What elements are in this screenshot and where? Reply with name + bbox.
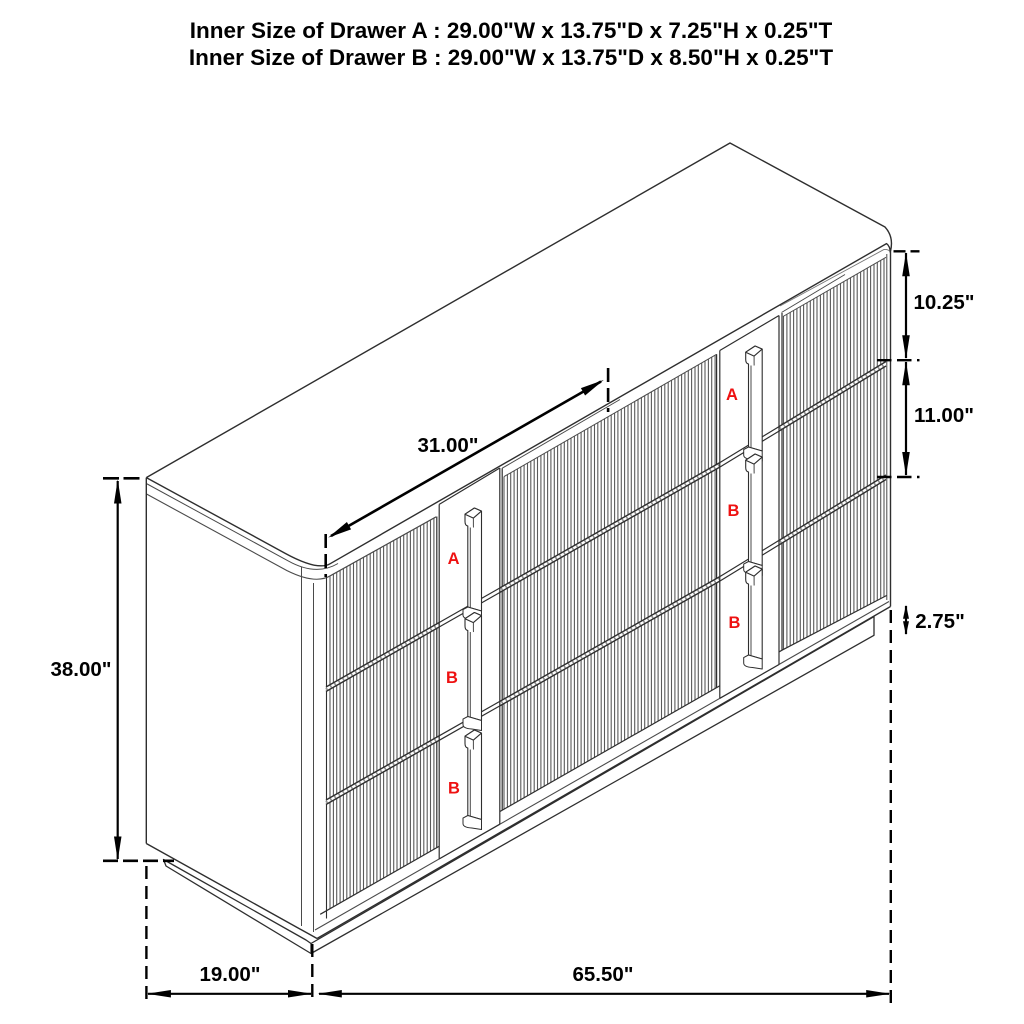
svg-text:Inner Size of Drawer A : 29.00: Inner Size of Drawer A : 29.00"W x 13.75… (190, 18, 833, 43)
svg-text:11.00": 11.00" (914, 404, 974, 427)
svg-text:38.00": 38.00" (50, 658, 111, 681)
svg-text:B: B (446, 669, 458, 687)
svg-text:2.75": 2.75" (915, 610, 965, 633)
svg-text:31.00": 31.00" (417, 434, 478, 457)
svg-text:A: A (726, 386, 738, 404)
svg-text:B: B (448, 780, 460, 798)
svg-text:19.00": 19.00" (199, 963, 260, 986)
svg-text:10.25": 10.25" (913, 291, 974, 314)
svg-text:B: B (729, 614, 741, 632)
svg-text:B: B (728, 502, 740, 520)
svg-text:Inner Size of Drawer B : 29.00: Inner Size of Drawer B : 29.00"W x 13.75… (189, 45, 833, 70)
svg-text:A: A (448, 550, 460, 568)
svg-text:65.50": 65.50" (572, 963, 633, 986)
